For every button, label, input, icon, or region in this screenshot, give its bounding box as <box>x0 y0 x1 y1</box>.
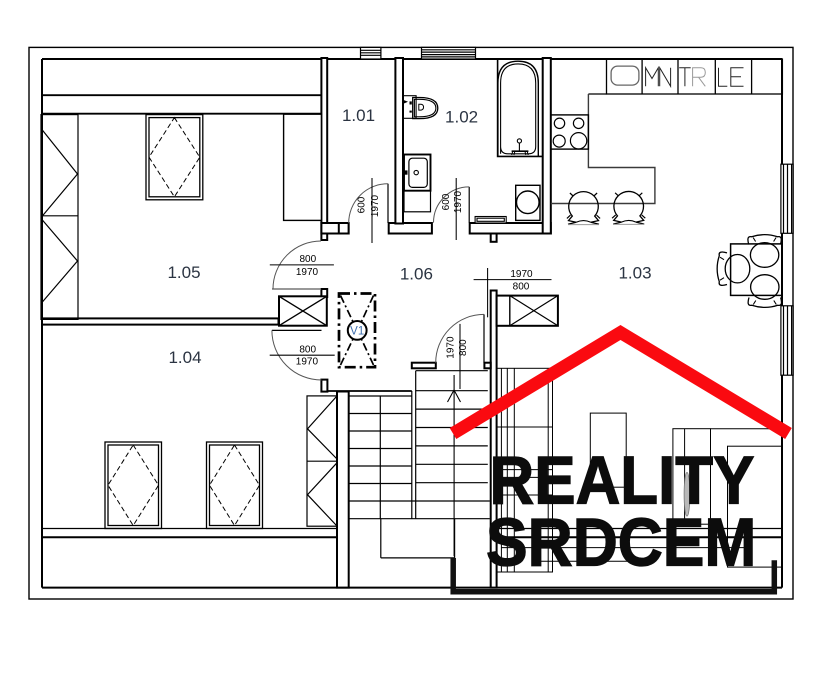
svg-text:1970: 1970 <box>370 194 381 217</box>
svg-text:1.03: 1.03 <box>618 264 651 283</box>
svg-text:800: 800 <box>513 282 530 293</box>
svg-text:600: 600 <box>357 196 368 213</box>
svg-text:1970: 1970 <box>296 357 319 368</box>
svg-text:1970: 1970 <box>510 269 533 280</box>
svg-text:1.05: 1.05 <box>167 263 200 282</box>
svg-text:1.01: 1.01 <box>342 106 375 125</box>
svg-text:800: 800 <box>299 254 316 265</box>
svg-text:800: 800 <box>299 345 316 356</box>
svg-text:1.02: 1.02 <box>445 108 478 127</box>
svg-text:1.06: 1.06 <box>400 265 433 284</box>
svg-text:V1: V1 <box>350 326 364 338</box>
svg-text:SRDCEM: SRDCEM <box>486 505 756 581</box>
svg-text:600: 600 <box>441 193 452 210</box>
svg-text:1970: 1970 <box>296 267 319 278</box>
svg-text:1970: 1970 <box>446 336 457 359</box>
svg-text:800: 800 <box>458 339 469 356</box>
svg-text:1.04: 1.04 <box>168 348 201 367</box>
svg-text:1970: 1970 <box>453 190 464 213</box>
